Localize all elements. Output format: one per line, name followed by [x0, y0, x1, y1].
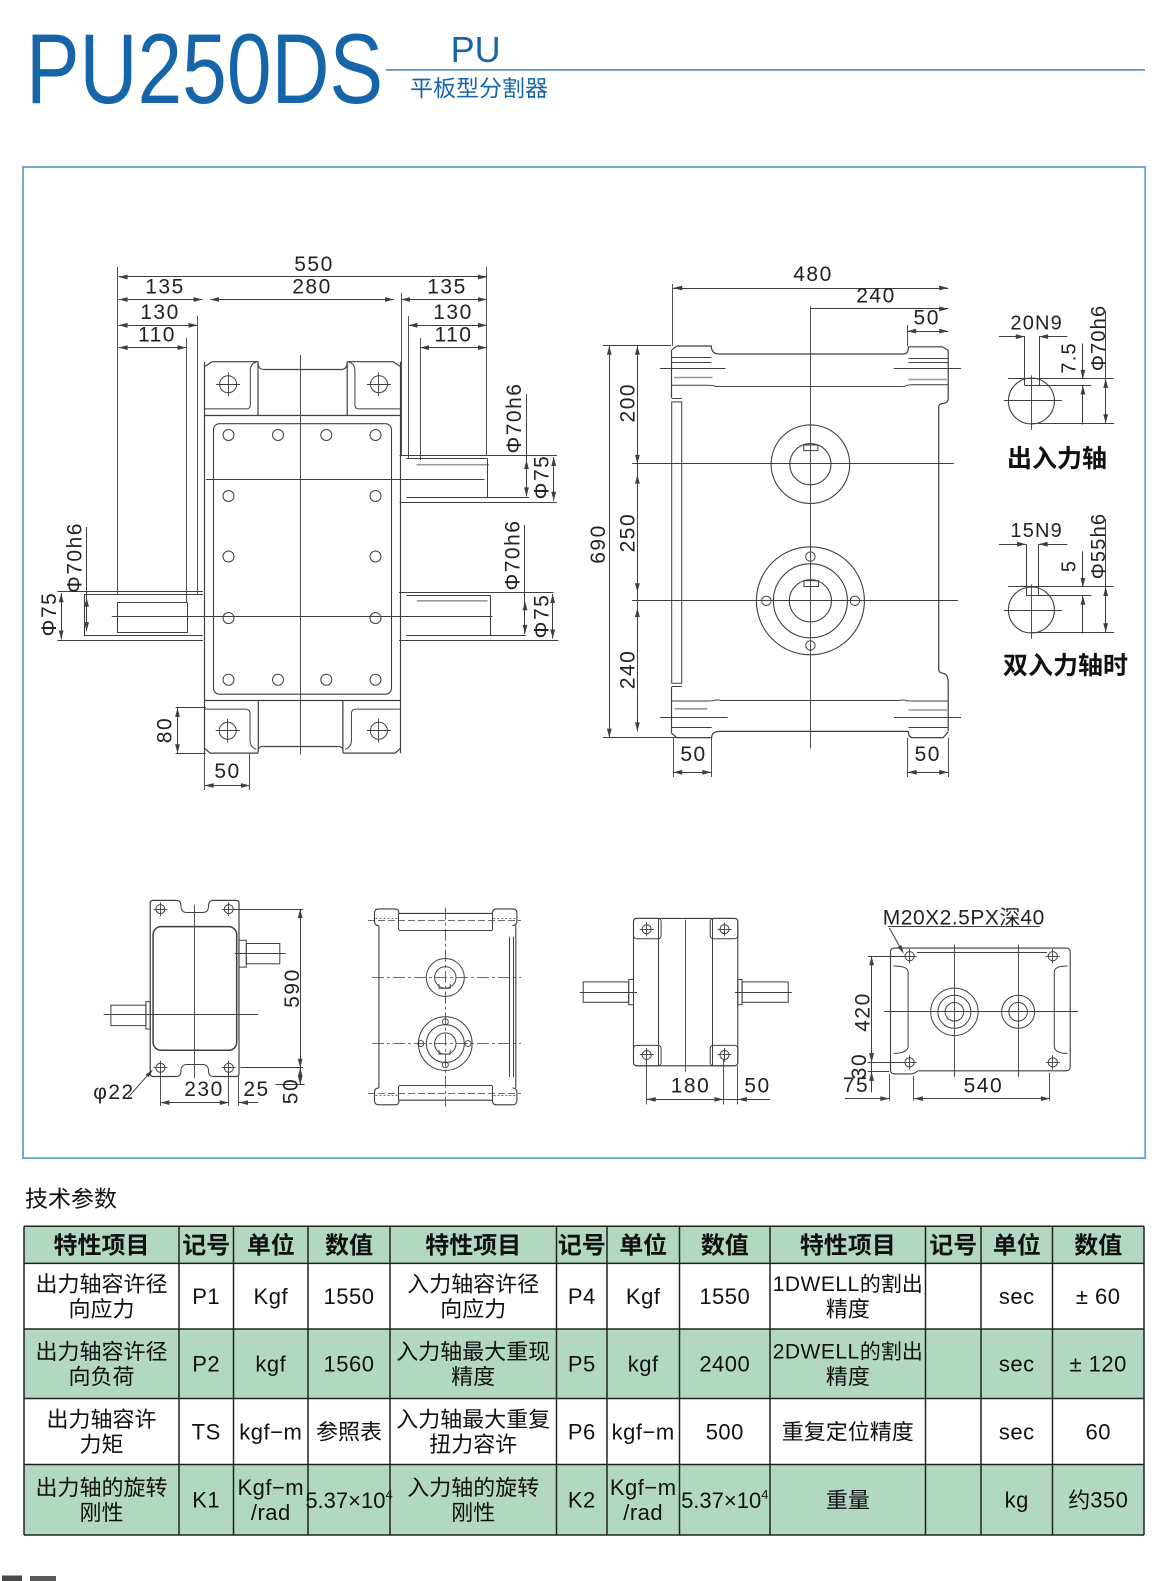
svg-text:590: 590 [281, 968, 304, 1008]
svg-text:50: 50 [914, 307, 940, 330]
svg-text:TS: TS [192, 1419, 221, 1444]
svg-text:50: 50 [279, 1078, 302, 1104]
svg-text:φ22: φ22 [93, 1081, 134, 1104]
svg-text:280: 280 [292, 276, 332, 299]
svg-text:420: 420 [851, 992, 874, 1032]
svg-text:Φ70h6: Φ70h6 [63, 522, 86, 593]
svg-text:Φ75: Φ75 [530, 594, 553, 639]
svg-text:Kgf: Kgf [254, 1284, 289, 1309]
svg-text:PU: PU [451, 29, 501, 70]
svg-text:240: 240 [856, 285, 896, 308]
svg-text:200: 200 [616, 383, 639, 423]
svg-text:250: 250 [616, 513, 639, 553]
svg-text:80: 80 [153, 717, 176, 743]
svg-text:K1: K1 [192, 1488, 220, 1513]
svg-text:15N9: 15N9 [1010, 520, 1063, 542]
svg-text:20N9: 20N9 [1010, 313, 1063, 335]
svg-text:690: 690 [587, 524, 610, 564]
svg-text:Φ70h6: Φ70h6 [501, 520, 524, 591]
svg-text:P4: P4 [568, 1284, 596, 1309]
svg-text:130: 130 [433, 301, 473, 324]
svg-text:1DWELL: 1DWELL [773, 1273, 860, 1296]
svg-text:1550: 1550 [324, 1284, 375, 1309]
svg-text:40: 40 [1020, 906, 1044, 929]
svg-text:550: 550 [294, 253, 334, 276]
svg-text:480: 480 [793, 263, 833, 286]
svg-text:180: 180 [671, 1075, 711, 1098]
svg-text:P6: P6 [568, 1419, 596, 1444]
svg-text:230: 230 [184, 1078, 224, 1101]
svg-text:5.37×104: 5.37×104 [681, 1487, 768, 1513]
svg-text:sec: sec [999, 1419, 1035, 1444]
svg-text:5: 5 [1059, 560, 1081, 572]
svg-text:50: 50 [744, 1075, 770, 1098]
svg-text:2400: 2400 [699, 1352, 750, 1377]
svg-text:kgf: kgf [628, 1352, 659, 1377]
svg-text:/rad: /rad [623, 1500, 663, 1525]
svg-text:Φ75: Φ75 [530, 455, 553, 500]
svg-text:P2: P2 [192, 1352, 220, 1377]
svg-text:135: 135 [427, 276, 467, 299]
svg-text:110: 110 [435, 324, 473, 347]
svg-text:25: 25 [243, 1078, 269, 1101]
svg-text:Φ70h6: Φ70h6 [503, 383, 526, 454]
svg-text:PU250DS: PU250DS [26, 13, 383, 124]
svg-text:sec: sec [999, 1352, 1035, 1377]
svg-text:± 60: ± 60 [1076, 1284, 1121, 1309]
svg-text:500: 500 [706, 1419, 744, 1444]
svg-text:Φ75: Φ75 [38, 592, 61, 637]
svg-text:Kgf: Kgf [626, 1284, 661, 1309]
svg-text:50: 50 [915, 743, 941, 766]
svg-text:75: 75 [843, 1074, 869, 1097]
svg-text:540: 540 [964, 1075, 1004, 1098]
svg-text:1560: 1560 [324, 1352, 375, 1377]
svg-text:110: 110 [138, 324, 176, 347]
svg-text:130: 130 [140, 301, 180, 324]
svg-text:60: 60 [1085, 1419, 1110, 1444]
svg-text:P5: P5 [568, 1352, 596, 1377]
svg-text:350: 350 [1090, 1488, 1128, 1513]
svg-text:kgf−m: kgf−m [612, 1419, 675, 1444]
svg-text:kg: kg [1005, 1488, 1029, 1513]
svg-text:2DWELL: 2DWELL [773, 1341, 860, 1364]
svg-text:240: 240 [616, 650, 639, 690]
svg-text:kgf−m: kgf−m [239, 1419, 302, 1444]
svg-text:Φ55h6: Φ55h6 [1088, 513, 1110, 579]
svg-text:sec: sec [999, 1284, 1035, 1309]
svg-text:Φ70h6: Φ70h6 [1088, 305, 1110, 371]
svg-text:50: 50 [680, 743, 706, 766]
svg-text:135: 135 [145, 276, 185, 299]
svg-text:Kgf−m: Kgf−m [237, 1475, 304, 1500]
svg-text:Kgf−m: Kgf−m [610, 1475, 677, 1500]
svg-text:M20X2.5PX: M20X2.5PX [883, 906, 1000, 929]
svg-text:50: 50 [214, 760, 240, 783]
svg-text:5.37×104: 5.37×104 [305, 1487, 392, 1513]
svg-text:kgf: kgf [255, 1352, 286, 1377]
svg-text:K2: K2 [568, 1488, 596, 1513]
svg-text:P1: P1 [192, 1284, 220, 1309]
svg-text:± 120: ± 120 [1069, 1352, 1126, 1377]
svg-text:7.5: 7.5 [1059, 342, 1081, 373]
svg-text:/rad: /rad [251, 1500, 291, 1525]
svg-text:1550: 1550 [699, 1284, 750, 1309]
